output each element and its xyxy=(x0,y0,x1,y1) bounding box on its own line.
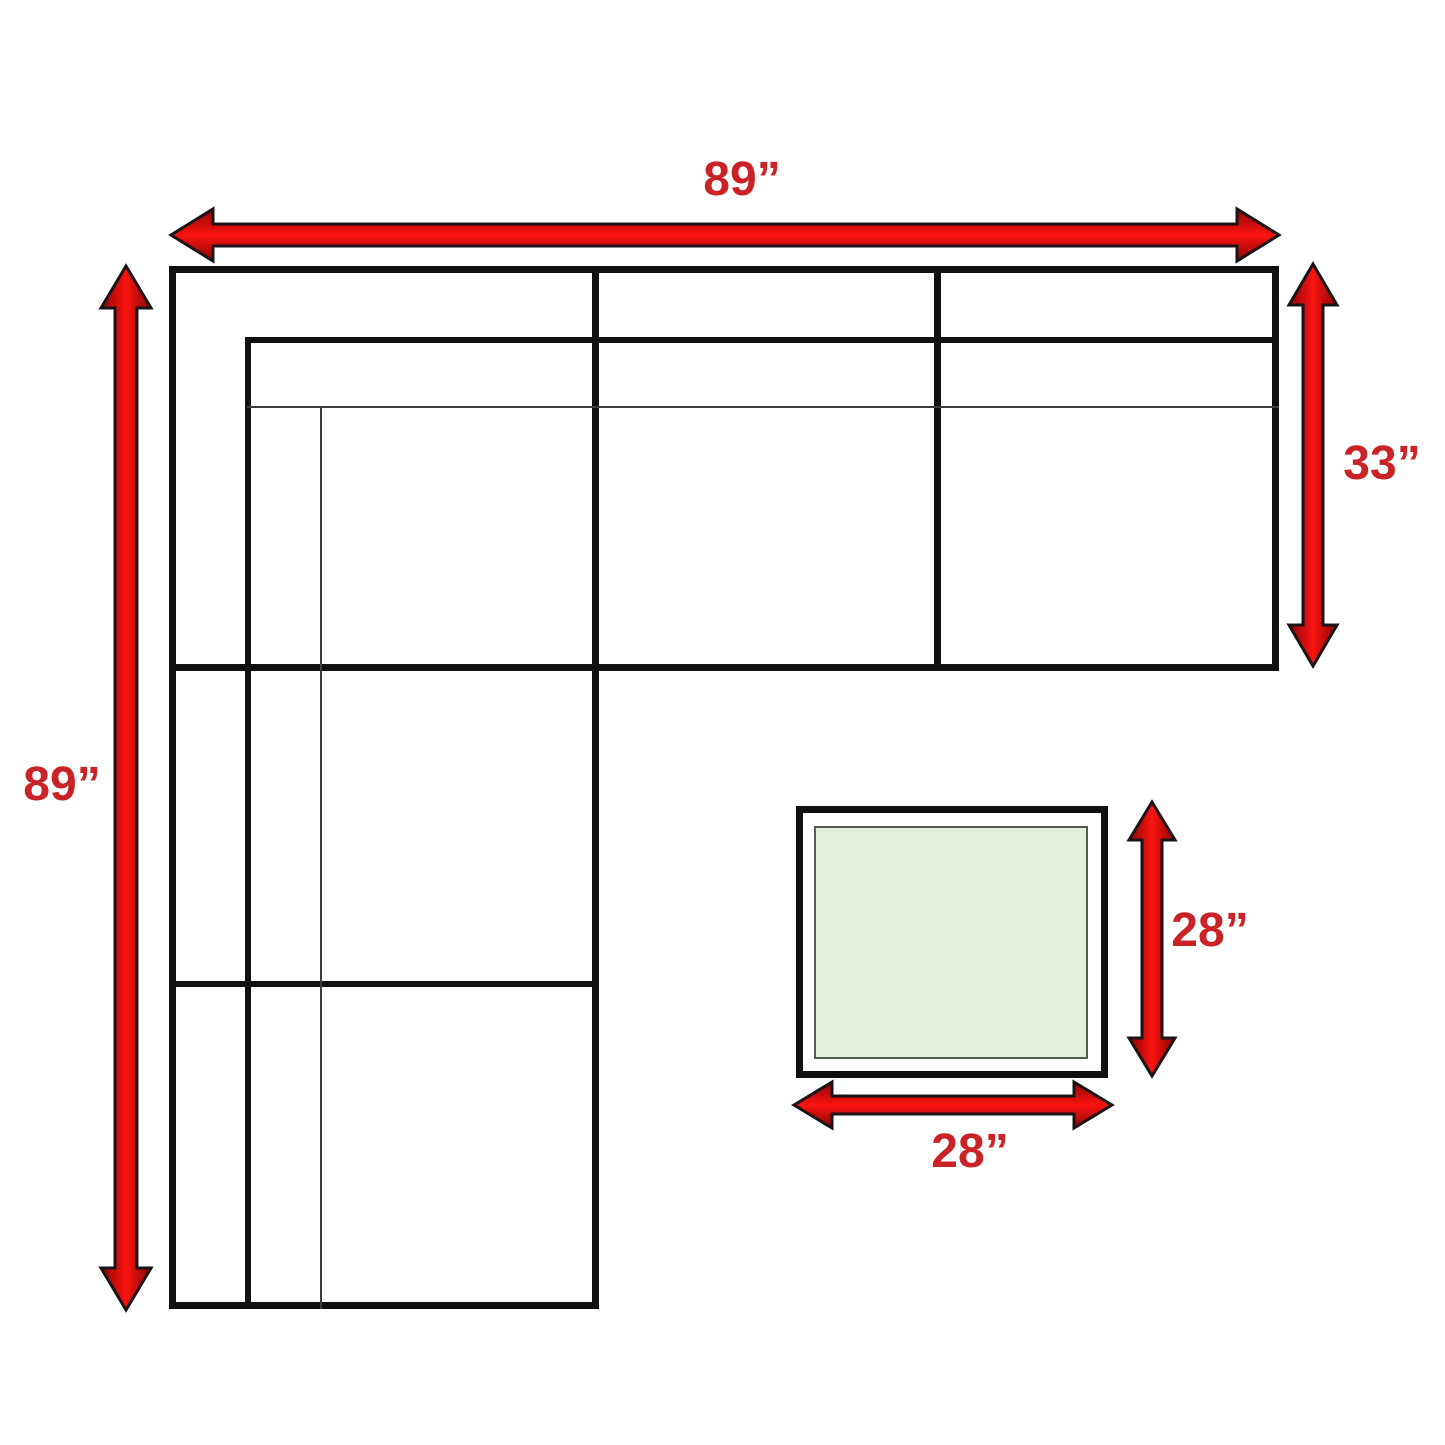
sofa-depth-label: 89” xyxy=(23,761,100,809)
sofa-cushion-line-vertical xyxy=(320,406,322,1309)
chaise-depth-arrow xyxy=(1286,261,1340,669)
sofa-armrest-line xyxy=(245,337,251,1309)
sofa-section-divider-vertical-2 xyxy=(934,266,941,671)
sofa-width-label: 89” xyxy=(703,156,780,204)
sofa-cushion-line-horizontal xyxy=(247,406,1279,408)
sofa-section-divider-vertical-1 xyxy=(592,266,599,1309)
sofa-seat-front-edge xyxy=(169,664,1279,671)
sofa-backrest-line xyxy=(245,337,1279,343)
ottoman-width-arrow xyxy=(791,1079,1115,1131)
sofa-depth-arrow xyxy=(98,263,154,1313)
dimension-diagram: { "diagram": { "dimensions": { "sofa_wid… xyxy=(0,0,1445,1445)
sofa-width-arrow xyxy=(168,206,1282,264)
sofa-outer-top-edge xyxy=(169,266,1279,273)
ottoman-cushion xyxy=(814,826,1088,1059)
sofa-chaise-bottom-edge xyxy=(169,1302,599,1309)
sofa-section-divider-horizontal xyxy=(169,981,599,987)
ottoman-width-label: 28” xyxy=(931,1128,1008,1176)
ottoman-depth-label: 28” xyxy=(1171,907,1248,955)
sofa-right-end-edge xyxy=(1272,266,1279,671)
chaise-depth-label: 33” xyxy=(1343,440,1420,488)
ottoman-depth-arrow xyxy=(1126,799,1178,1079)
ottoman-frame xyxy=(796,806,1108,1078)
sofa-outer-left-edge xyxy=(169,266,176,1309)
